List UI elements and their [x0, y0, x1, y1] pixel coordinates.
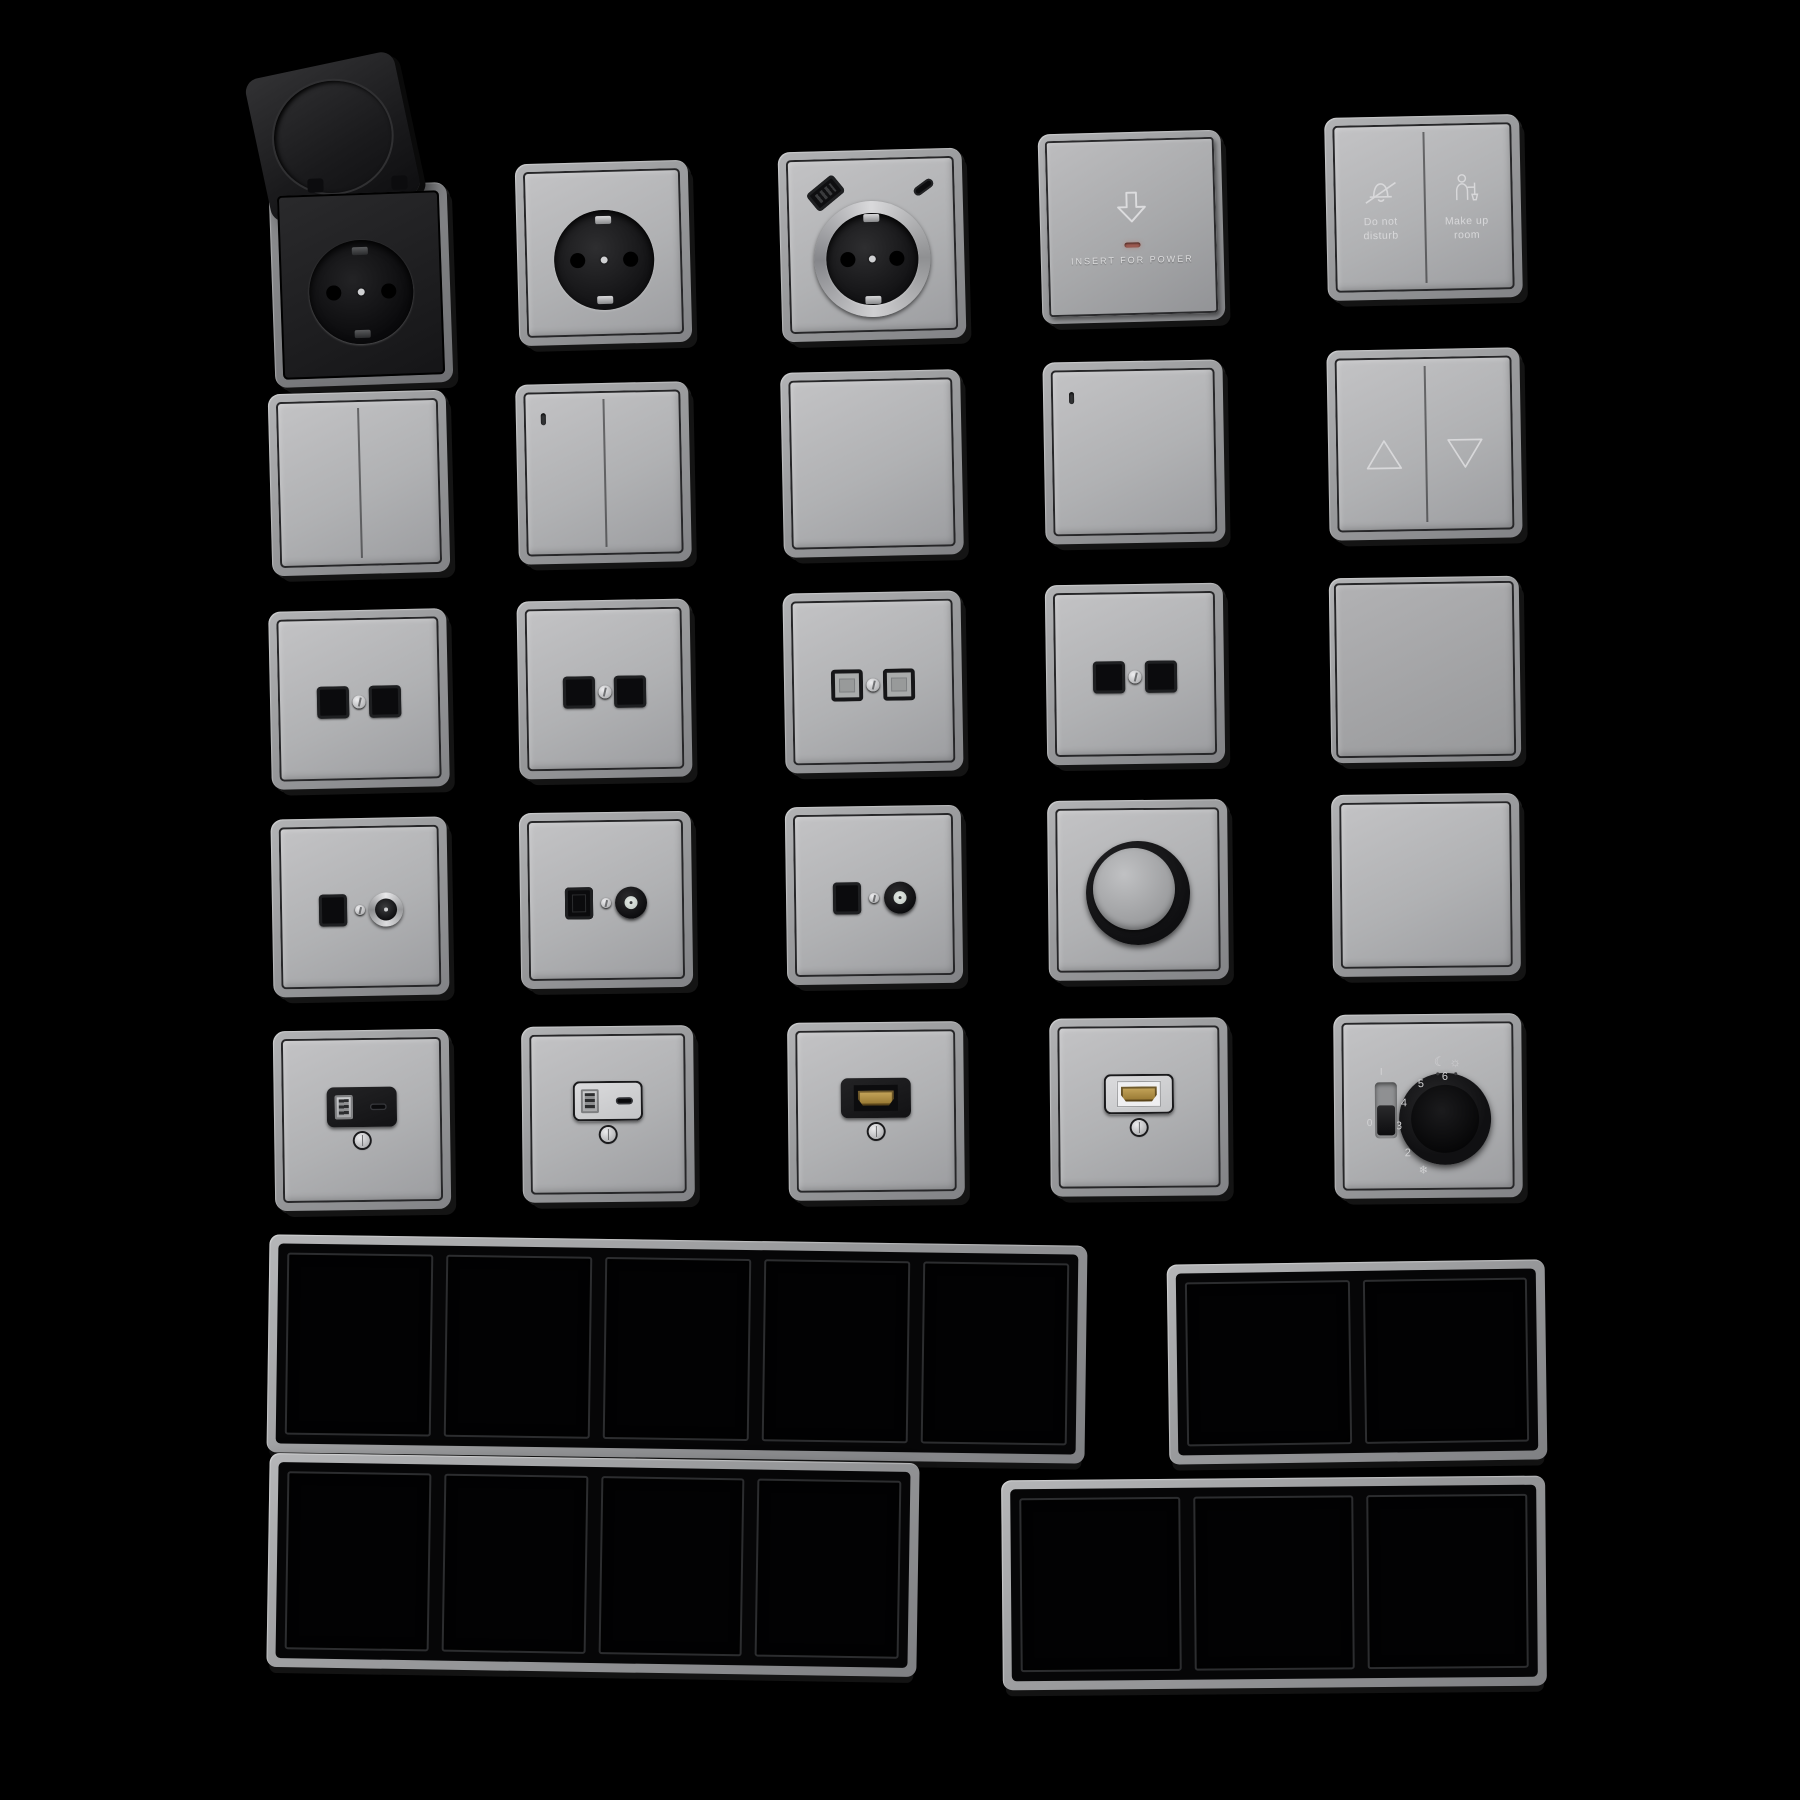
scale-number: 6 [1442, 1071, 1448, 1083]
rocker-divider [1423, 366, 1428, 523]
thermostat-dial: 2 3 4 5 6 ❄ ☾ ☼ I 0 [1333, 1013, 1523, 1199]
data-jack [369, 685, 402, 718]
socket-schuko-usb [778, 148, 967, 343]
data-socket-double-3 [1045, 583, 1225, 765]
earth-clip [352, 246, 368, 255]
dimmer-ring [1085, 841, 1190, 946]
socket-face [277, 190, 445, 380]
data-socket-double-shuttered [782, 590, 963, 773]
indicator-led-slot [541, 414, 546, 426]
rocker-buttons[interactable] [276, 398, 442, 568]
hdmi-socket-black [787, 1021, 965, 1201]
mounting-screw [1132, 1120, 1147, 1135]
data-socket-face [276, 616, 441, 781]
frame-opening [1019, 1497, 1181, 1672]
large-rocker-switch [1329, 576, 1522, 764]
hinge [307, 178, 323, 193]
double-rocker-switch-led [515, 381, 692, 565]
rotary-dimmer [1047, 799, 1229, 981]
frame-opening [285, 1471, 432, 1651]
usb-c-port [616, 1097, 633, 1104]
tv-data-socket-2 [519, 811, 693, 989]
scale-number: 4 [1401, 1097, 1407, 1109]
socket-face [523, 168, 684, 338]
dimmer-face [1055, 807, 1221, 973]
usb-charger-face [281, 1037, 443, 1203]
frame-2-gang [1167, 1259, 1548, 1464]
double-rocker-switch [268, 390, 451, 577]
rocker-divider [602, 399, 607, 547]
data-socket-face [791, 599, 956, 766]
tv-socket-face [527, 819, 685, 981]
make-up-room-button[interactable]: Make up room [1424, 129, 1510, 284]
data-socket-face [525, 607, 685, 772]
scale-number: 5 [1418, 1078, 1424, 1090]
usb-charger-face [529, 1033, 687, 1195]
frame-opening [921, 1261, 1070, 1445]
frame-bed [1176, 1268, 1539, 1455]
frame-bed [1010, 1485, 1538, 1682]
data-jack [833, 882, 861, 914]
shutter-up-icon [1363, 437, 1406, 474]
tv-data-socket-coax [270, 816, 449, 997]
frost-mode-icon: ❄ [1419, 1163, 1428, 1176]
card-slot-button[interactable]: INSERT FOR POWER [1045, 137, 1219, 317]
schuko-recess [307, 239, 415, 347]
data-jack [565, 887, 593, 919]
slider-off-mark: 0 [1367, 1118, 1373, 1129]
rocker-divider [357, 408, 363, 557]
socket-face [786, 156, 958, 334]
hdmi-face [795, 1029, 957, 1193]
usb-insert [327, 1086, 398, 1127]
do-not-disturb-label: Do not disturb [1363, 216, 1399, 243]
frame-bed [276, 1243, 1079, 1454]
usb-a-port [581, 1089, 599, 1113]
do-not-disturb-button[interactable]: Do not disturb [1338, 131, 1424, 286]
thermostat-face: 2 3 4 5 6 ❄ ☾ ☼ I 0 [1341, 1021, 1514, 1190]
frame-opening [762, 1259, 911, 1443]
lid-circle-engraving [261, 67, 404, 206]
antenna-connector [615, 887, 647, 919]
usb-insert [573, 1081, 643, 1122]
center-screw [601, 898, 611, 908]
blank-face [1339, 801, 1513, 969]
shuttered-data-jack [831, 669, 864, 702]
frame-opening [285, 1253, 434, 1437]
single-rocker-switch [780, 369, 964, 558]
schuko-recess [552, 208, 655, 311]
do-not-disturb-bell-icon [1358, 174, 1403, 209]
usb-c-port [912, 177, 935, 197]
center-screw [598, 686, 611, 699]
center-screw [1128, 671, 1141, 684]
data-socket-double-2 [516, 599, 692, 780]
switch-face: Do not disturb Make up room [1332, 122, 1514, 293]
coax-connector [368, 892, 403, 927]
make-up-room-icon [1447, 171, 1486, 208]
thermostat-knob[interactable] [1399, 1073, 1492, 1166]
data-socket-double [268, 608, 450, 790]
center-screw [355, 905, 365, 915]
key-card-switch: INSERT FOR POWER [1038, 130, 1226, 325]
mounting-screw [869, 1124, 884, 1139]
blank-plate [1331, 793, 1521, 977]
earth-clip [597, 295, 613, 303]
usb-a-port [335, 1095, 353, 1119]
data-jack [1145, 661, 1177, 693]
frame-opening [755, 1479, 902, 1659]
frame-opening [1367, 1494, 1529, 1669]
data-socket-face [1053, 591, 1217, 757]
mode-dot [1437, 1072, 1440, 1075]
hdmi-face [1057, 1025, 1220, 1188]
hdmi-port [858, 1090, 894, 1105]
frame-opening [1193, 1495, 1355, 1670]
frame-4-gang [266, 1453, 919, 1677]
tv-data-socket-3 [785, 805, 963, 985]
rocker-button[interactable] [788, 377, 956, 549]
usb-a-port [805, 174, 845, 213]
shutter-switch [1326, 347, 1522, 540]
data-jack [613, 676, 646, 709]
mode-dot [1454, 1072, 1457, 1075]
shutter-down-icon [1444, 435, 1487, 472]
shuttered-data-jack [883, 669, 916, 702]
frame-3-gang [1001, 1476, 1547, 1691]
frame-opening [441, 1474, 588, 1654]
usb-c-port [370, 1103, 387, 1110]
frame-opening [1362, 1278, 1529, 1444]
make-up-room-label: Make up room [1445, 215, 1489, 242]
socket-schuko [515, 160, 693, 346]
earth-clip [355, 330, 371, 339]
data-jack [1093, 661, 1125, 693]
frame-opening [603, 1257, 752, 1441]
frame-opening [444, 1255, 593, 1439]
insert-card-arrow-icon [1107, 186, 1154, 233]
card-switch-label: INSERT FOR POWER [1048, 253, 1217, 267]
rocker-buttons[interactable] [523, 389, 683, 556]
tv-socket-face [793, 813, 955, 977]
mounting-screw [355, 1133, 370, 1148]
earth-clip [863, 213, 879, 221]
frame-opening [1185, 1280, 1352, 1446]
schuko-recess [813, 199, 932, 318]
dimmer-knob[interactable] [1092, 848, 1175, 931]
earth-clip [595, 215, 611, 223]
hdmi-insert [841, 1078, 911, 1119]
slider-on-mark: I [1380, 1067, 1383, 1078]
center-screw [869, 893, 879, 903]
data-jack [317, 686, 350, 719]
hdmi-insert [1104, 1074, 1174, 1115]
day-mode-icon: ☼ [1449, 1055, 1461, 1070]
frame-bed [275, 1462, 910, 1668]
hdmi-socket-light [1049, 1017, 1229, 1197]
data-jack [563, 676, 596, 709]
rocker-button[interactable] [1334, 581, 1516, 758]
center-screw [352, 696, 365, 709]
earth-clip [865, 296, 881, 304]
scale-number: 2 [1405, 1147, 1411, 1159]
socket-flip-cover [269, 182, 454, 388]
mounting-screw [601, 1127, 616, 1142]
tv-socket-face [279, 825, 442, 990]
center-screw [866, 679, 879, 692]
mode-slider[interactable] [1374, 1083, 1396, 1139]
indicator-led-slot [1069, 392, 1074, 404]
shutter-rocker-buttons[interactable] [1334, 355, 1514, 532]
rocker-button[interactable] [1051, 368, 1218, 537]
usb-charger-socket-black [273, 1029, 451, 1211]
data-jack [319, 894, 348, 926]
hinge [391, 175, 407, 190]
usb-charger-socket-light [521, 1025, 695, 1203]
status-led [1124, 242, 1140, 247]
night-mode-icon: ☾ [1434, 1054, 1446, 1070]
slider-knob[interactable] [1377, 1106, 1395, 1136]
product-render-canvas: INSERT FOR POWER Do not disturb [0, 0, 1800, 1800]
service-switch: Do not disturb Make up room [1324, 114, 1523, 301]
frame-5-gang [267, 1234, 1088, 1463]
hdmi-port [1121, 1086, 1157, 1101]
frame-opening [598, 1476, 745, 1656]
antenna-connector [883, 882, 915, 914]
single-rocker-switch-led [1042, 359, 1225, 544]
